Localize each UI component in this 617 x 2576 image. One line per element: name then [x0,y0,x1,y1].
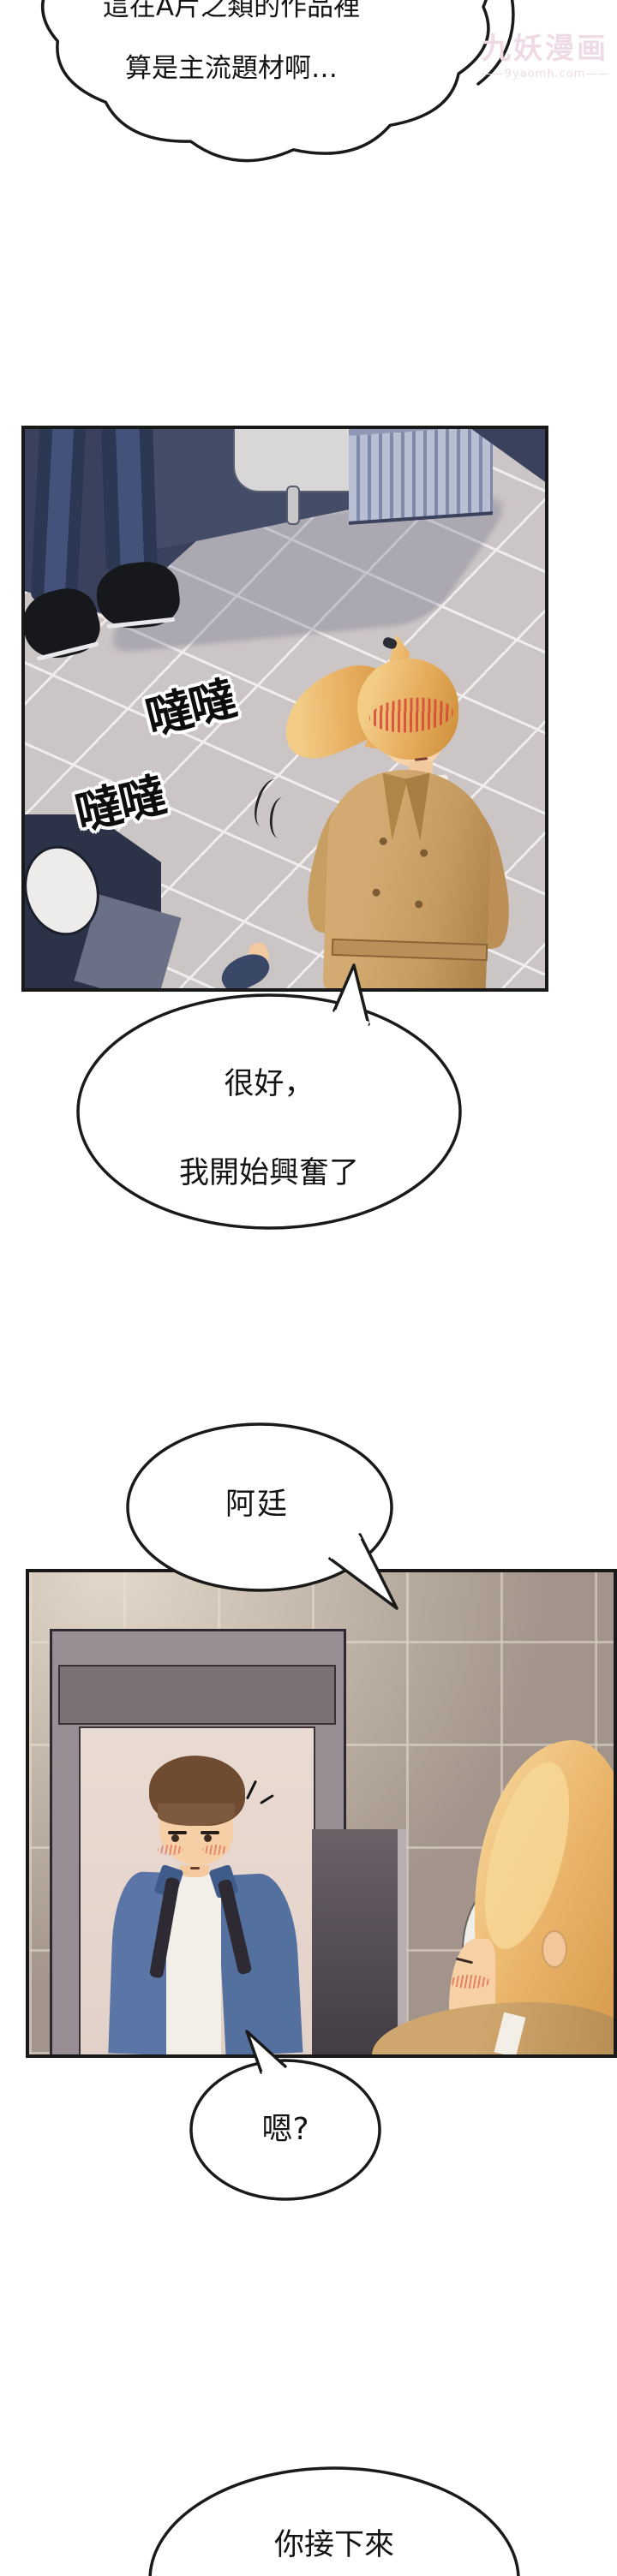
bubble3-line1: 阿廷 [225,1488,289,1522]
woman-ear [542,1930,567,1968]
man-pupil-right [204,1834,212,1842]
watermark-logo-text: 九妖漫画 [470,34,617,63]
speech-bubble-whats-next [146,2462,523,2576]
man-mouth [190,1867,200,1869]
man-left-leg [31,426,87,603]
bubble1-line1: 這在A片之類的作品裡 [103,0,360,22]
sink-pipe [286,486,300,525]
panel-restroom-floor: 噠噠 噠噠 [21,426,548,992]
site-watermark: 九妖漫画 ——9yaomh.com—— [470,34,617,80]
comic-page: 噠噠 噠噠 [0,0,617,2576]
woman-blush [449,1975,490,1989]
man-eye-left [168,1831,187,1834]
bubble4-line1: 嗯? [261,2112,308,2147]
watermark-url: ——9yaomh.com—— [470,69,617,80]
thought-bubble-cloud [17,0,548,171]
bubble4-text: 嗯? [200,2113,371,2147]
tail-seam [262,2068,284,2074]
man-pupil-left [171,1834,179,1842]
bubble2-text: 很好， 我開始興奮了 [106,1062,432,1196]
bubble3-text: 阿廷 [137,1488,377,1522]
doorway-shadow [312,1829,401,2054]
radiator [349,426,493,525]
man-eye-right [201,1831,219,1834]
tail-seam [334,1012,368,1024]
bubble5-line1: 你接下來 [274,2528,394,2562]
bubble1-text: 這在A片之類的作品裡 算是主流題材啊… [69,0,394,84]
bubble2-line2: 我開始興奮了 [179,1156,359,1190]
bubble5-text: 你接下來 要怎麼做? [163,2526,506,2576]
doorway-edge [398,1829,406,2054]
bubble2-line1: 很好， [224,1067,314,1101]
man-blush-left [158,1845,183,1855]
man-blush-right [202,1845,228,1855]
man-right-leg [101,426,158,572]
tail-seam [330,1536,360,1557]
mirror-lintel [58,1665,336,1725]
panel-mirror-scene [26,1569,617,2058]
bubble1-line2: 算是主流題材啊… [125,53,338,84]
